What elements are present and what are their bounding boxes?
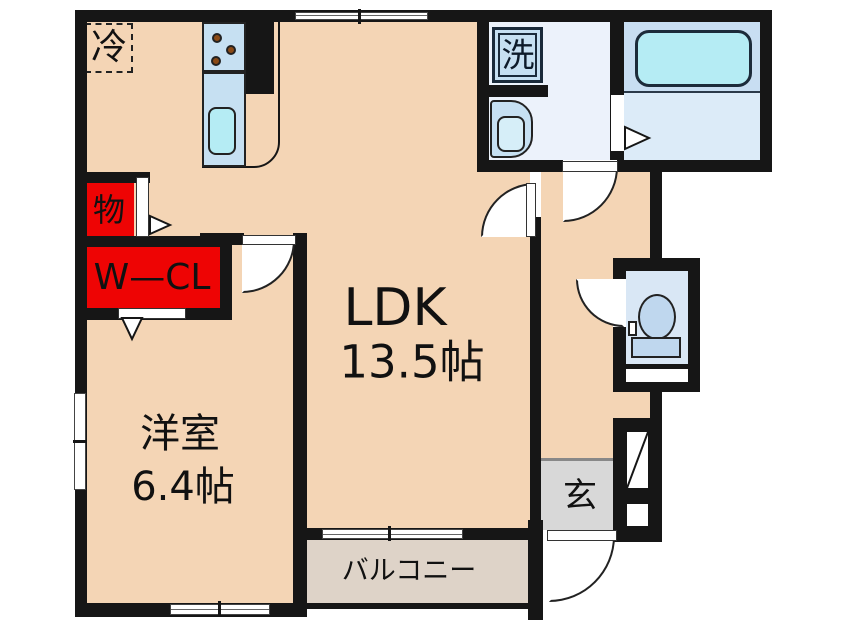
door-bathroom-arrow: [624, 126, 651, 151]
walkin-closet-door-arrow: [120, 317, 145, 342]
door-bedroom-leaf: [242, 235, 296, 245]
stove-burner: [211, 56, 221, 66]
label-refrigerator: 冷: [91, 30, 127, 66]
label-balcony: バルコニー: [342, 558, 476, 585]
kitchen-sink-basin: [208, 107, 236, 155]
shoe-cabinet-lower: [625, 502, 650, 528]
door-ldk-leaf: [526, 183, 536, 237]
storage-door: [136, 177, 149, 237]
wall-washroom-bottom: [477, 160, 563, 172]
stove-burner: [212, 33, 222, 43]
label-washing-machine: 洗: [502, 39, 535, 72]
stove-burner: [226, 45, 236, 55]
label-ldk-size: 13.5帖: [339, 340, 484, 385]
label-entrance: 玄: [563, 479, 597, 513]
window-balcony-midline: [323, 534, 462, 535]
wall-bedroom-right: [293, 233, 307, 617]
label-ldk-name: LDK: [343, 282, 446, 334]
wall-column-divider: [613, 490, 650, 502]
wall-column-left: [613, 418, 625, 540]
wall-column-top: [613, 418, 662, 430]
label-bedroom-name: 洋室: [140, 414, 220, 454]
floor-plan: 冷 洗 物 W—CL LDK 13.5帖 洋室 6.4帖 バルコニー 玄: [0, 0, 846, 634]
storage-door-arrow: [149, 215, 172, 236]
door-entrance-arc: [549, 536, 615, 602]
toilet-tank: [631, 337, 681, 358]
label-walkin-closet: W—CL: [94, 260, 211, 296]
kitchen-hood-wall: [246, 20, 274, 94]
toilet-handle: [628, 321, 637, 336]
wall-column-bottom: [613, 528, 662, 542]
door-bathroom-gap: [611, 95, 624, 151]
door-entrance-leaf: [547, 530, 617, 541]
wall-bath-right: [760, 10, 772, 172]
stove: [202, 22, 246, 72]
wall-segment: [220, 236, 232, 320]
toilet-bowl: [638, 294, 676, 340]
bathtub: [635, 30, 752, 87]
wall-bedroom-door-header: [200, 233, 244, 245]
label-bedroom-size: 6.4帖: [131, 467, 235, 507]
window-balcony-tick: [388, 526, 391, 541]
wall-left: [75, 10, 87, 617]
toilet-window: [626, 369, 688, 382]
wall-bath-bottom: [617, 160, 772, 172]
wall-right-lower: [650, 390, 662, 542]
window-top-midline: [296, 15, 427, 16]
wall-washer-stub: [488, 85, 548, 97]
window-left-tick: [73, 440, 87, 443]
window-top-tick: [358, 9, 361, 24]
window-top: [295, 12, 428, 20]
wall-balcony-bottom: [305, 603, 543, 609]
label-storage: 物: [93, 194, 125, 226]
washbasin-bowl: [497, 116, 525, 152]
wall-ldk-hall: [530, 217, 541, 540]
wall-right-mid: [650, 160, 662, 268]
door-washroom-leaf: [562, 161, 618, 172]
window-bottom-tick: [218, 601, 221, 617]
shoe-cabinet-diagonal: [625, 430, 650, 490]
